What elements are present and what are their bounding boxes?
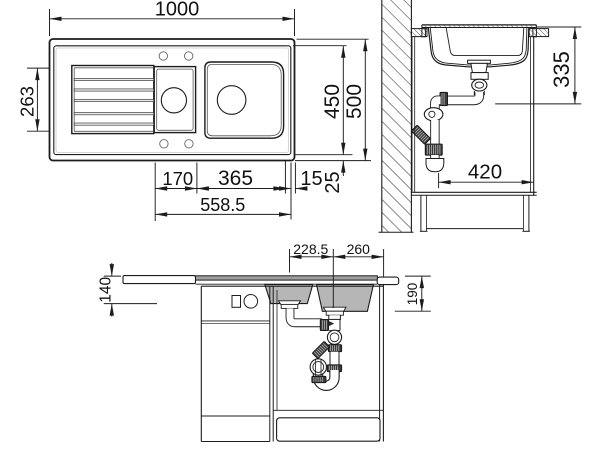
svg-text:365: 365: [218, 167, 253, 190]
svg-text:335: 335: [549, 51, 574, 88]
svg-text:140: 140: [97, 276, 114, 302]
svg-text:15: 15: [300, 168, 322, 190]
svg-text:260: 260: [347, 241, 371, 257]
svg-text:450: 450: [321, 84, 344, 119]
svg-text:420: 420: [468, 161, 502, 184]
svg-text:25: 25: [322, 171, 344, 193]
svg-text:190: 190: [405, 283, 420, 306]
svg-text:500: 500: [343, 84, 366, 119]
svg-text:558.5: 558.5: [200, 195, 245, 215]
svg-text:228.5: 228.5: [293, 241, 328, 257]
svg-text:1000: 1000: [155, 0, 200, 20]
svg-text:263: 263: [17, 86, 38, 117]
svg-text:170: 170: [162, 168, 193, 189]
